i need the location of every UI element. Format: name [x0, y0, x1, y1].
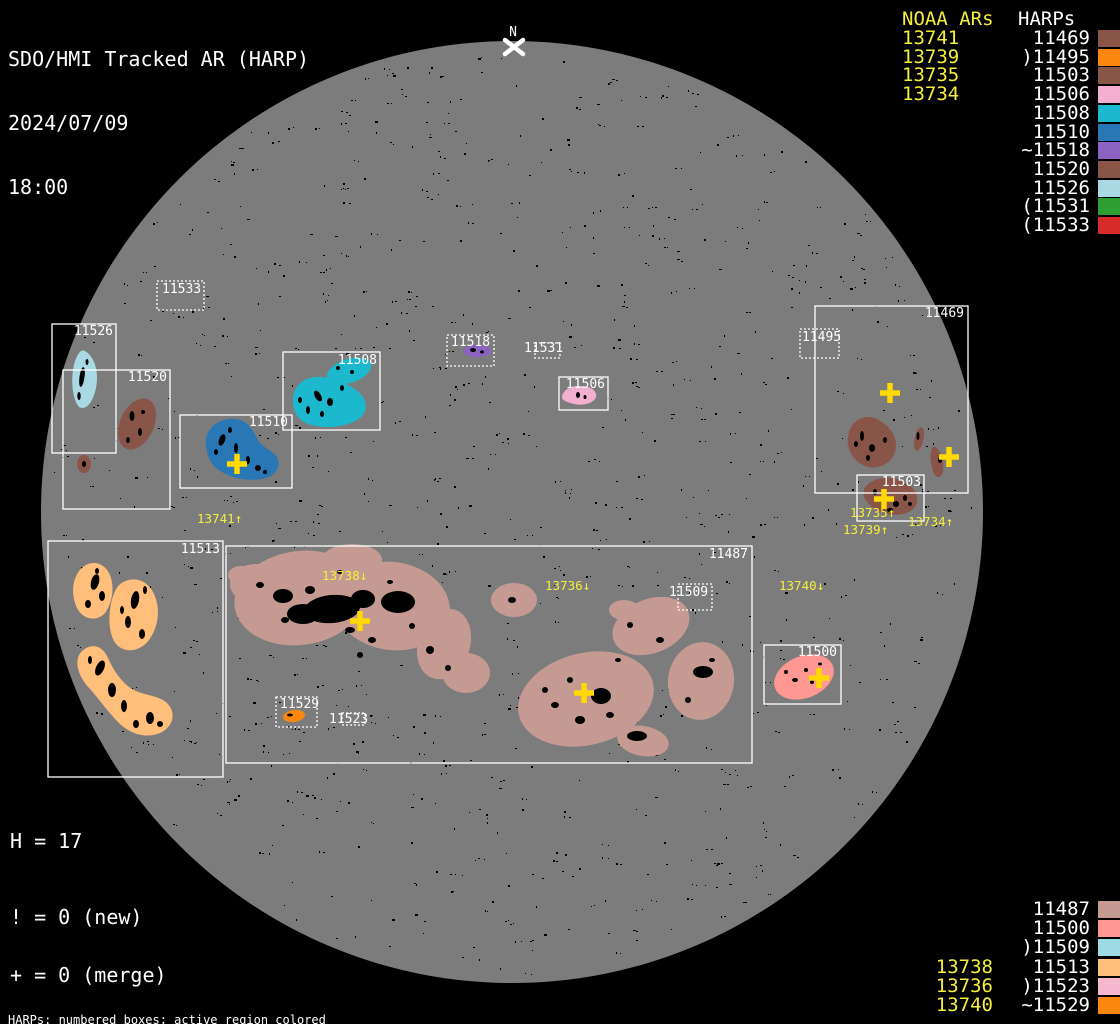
speckle — [849, 729, 850, 730]
speckle — [416, 435, 418, 436]
speckle — [616, 481, 618, 482]
speckle — [372, 480, 373, 481]
speckle — [931, 380, 932, 382]
speckle — [608, 845, 609, 846]
speckle — [375, 121, 378, 123]
speckle — [449, 351, 450, 352]
speckle — [702, 204, 703, 205]
speckle — [622, 306, 625, 307]
speckle — [342, 689, 343, 690]
speckle — [701, 564, 702, 565]
speckle — [854, 579, 855, 581]
speckle — [624, 227, 625, 228]
speckle — [358, 671, 360, 672]
speckle — [641, 499, 643, 500]
speckle — [950, 498, 952, 499]
speckle — [944, 498, 946, 499]
speckle — [268, 752, 269, 753]
speckle — [522, 809, 524, 811]
speckle — [190, 720, 191, 722]
speckle — [134, 506, 135, 508]
speckle — [487, 911, 488, 912]
speckle — [189, 741, 191, 742]
speckle — [805, 476, 806, 477]
speckle — [506, 853, 507, 854]
speckle — [412, 434, 413, 436]
speckle — [93, 407, 95, 408]
speckle — [421, 798, 423, 800]
speckle — [299, 427, 301, 429]
speckle — [904, 300, 905, 301]
speckle — [897, 721, 899, 722]
speckle — [271, 716, 272, 717]
speckle — [120, 498, 121, 499]
speckle — [423, 933, 424, 934]
speckle — [610, 82, 612, 83]
speckle — [507, 638, 508, 640]
speckle — [194, 584, 197, 585]
speckle — [657, 572, 658, 573]
speckle — [317, 455, 318, 457]
speckle — [768, 894, 769, 895]
speckle — [664, 842, 666, 844]
speckle — [395, 301, 397, 302]
speckle — [584, 225, 586, 227]
harp-box-label-11509: 11509 — [669, 585, 708, 600]
speckle — [430, 134, 431, 135]
speckle — [191, 741, 192, 743]
speckle — [624, 295, 626, 296]
speckle — [563, 321, 564, 322]
speckle — [339, 531, 341, 532]
speckle — [555, 621, 556, 623]
speckle — [362, 741, 364, 743]
harp-box-label-11510: 11510 — [249, 415, 288, 430]
speckle — [499, 788, 502, 789]
speckle — [308, 455, 310, 457]
speckle — [466, 143, 467, 144]
speckle — [612, 79, 615, 80]
speckle — [148, 744, 149, 745]
speckle — [896, 537, 897, 538]
speckle — [276, 523, 277, 524]
speckle — [756, 877, 757, 878]
speckle — [345, 123, 347, 124]
speckle — [486, 814, 488, 816]
speckle — [489, 402, 491, 403]
speckle — [726, 837, 727, 839]
speckle — [336, 938, 338, 939]
speckle — [390, 142, 392, 143]
speckle — [843, 640, 844, 641]
speckle — [614, 319, 615, 321]
speckle — [645, 815, 647, 816]
speckle — [201, 785, 202, 786]
speckle — [368, 501, 369, 502]
speckle — [315, 128, 317, 130]
speckle — [422, 554, 423, 555]
speckle — [681, 715, 683, 717]
speckle — [400, 665, 403, 666]
speckle — [597, 285, 600, 287]
speckle — [422, 189, 423, 191]
speckle — [727, 137, 729, 138]
speckle — [691, 899, 693, 900]
speckle — [816, 253, 818, 254]
speckle — [440, 513, 442, 515]
speckle — [412, 146, 413, 148]
speckle — [714, 378, 716, 380]
speckle — [593, 237, 594, 239]
speckle — [728, 531, 729, 533]
stat-new: ! = 0 (new) — [10, 908, 239, 927]
speckle — [463, 384, 465, 386]
speckle — [513, 923, 514, 924]
speckle — [911, 415, 912, 416]
speckle — [696, 209, 698, 210]
speckle — [844, 728, 845, 730]
speckle — [739, 412, 741, 413]
noaa-label-13736: 13736↓ — [545, 578, 590, 593]
speckle — [491, 159, 493, 160]
speckle — [393, 75, 396, 77]
speckle — [349, 203, 351, 204]
speckle — [765, 682, 766, 683]
speckle — [143, 742, 144, 744]
speckle — [757, 712, 759, 713]
speckle — [662, 95, 664, 97]
speckle — [579, 868, 581, 870]
speckle — [865, 214, 866, 215]
speckle — [662, 690, 663, 691]
speckle — [346, 255, 347, 257]
speckle — [704, 239, 706, 241]
speckle — [147, 741, 149, 742]
speckle — [518, 290, 520, 292]
speckle — [758, 209, 759, 210]
speckle — [910, 355, 911, 356]
speckle — [272, 540, 274, 542]
speckle — [256, 268, 257, 269]
speckle — [341, 334, 342, 335]
speckle — [793, 265, 795, 266]
speckle — [472, 204, 473, 205]
speckle — [829, 298, 831, 299]
speckle — [918, 663, 920, 664]
speckle — [146, 572, 148, 574]
speckle — [460, 206, 461, 207]
speckle — [425, 416, 426, 418]
speckle — [478, 858, 480, 859]
speckle — [371, 900, 372, 901]
speckle — [928, 506, 929, 507]
speckle — [556, 861, 558, 862]
speckle — [479, 809, 481, 810]
speckle — [140, 281, 142, 282]
legend-harp-11508: 11508 — [998, 104, 1090, 123]
speckle — [423, 714, 426, 716]
speckle — [502, 442, 504, 443]
speckle — [192, 229, 193, 231]
legend-harp-11523: )11523 — [998, 977, 1090, 996]
speckle — [365, 78, 366, 80]
speckle — [746, 312, 748, 313]
speckle — [741, 373, 742, 375]
speckle — [787, 377, 789, 379]
speckle — [424, 732, 426, 734]
speckle — [464, 153, 466, 155]
speckle — [271, 765, 272, 767]
speckle — [190, 468, 191, 470]
speckle — [937, 592, 938, 594]
speckle — [765, 837, 767, 838]
speckle — [870, 221, 871, 222]
speckle — [666, 97, 668, 98]
speckle — [852, 260, 854, 261]
speckle — [524, 374, 526, 376]
speckle — [223, 318, 225, 320]
speckle — [692, 209, 693, 210]
speckle — [705, 811, 706, 812]
speckle — [621, 507, 623, 508]
speckle — [647, 874, 649, 875]
speckle — [505, 921, 507, 922]
speckle — [781, 452, 782, 453]
speckle — [361, 685, 362, 686]
speckle — [256, 680, 258, 681]
speckle — [837, 391, 839, 392]
speckle — [335, 348, 337, 349]
speckle — [508, 708, 511, 710]
speckle — [689, 288, 690, 289]
speckle — [158, 428, 160, 429]
speckle — [219, 754, 220, 755]
speckle — [695, 106, 697, 107]
speckle — [530, 941, 532, 942]
speckle — [274, 263, 276, 265]
noaa-label-13738: 13738↓ — [322, 568, 367, 583]
speckle — [299, 741, 301, 742]
speckle — [525, 973, 526, 974]
speckle — [721, 916, 722, 918]
speckle — [299, 500, 302, 502]
speckle — [119, 572, 120, 574]
speckle — [358, 846, 360, 848]
speckle — [887, 326, 888, 327]
speckle — [389, 946, 391, 947]
speckle — [203, 779, 205, 780]
speckle — [435, 715, 436, 717]
speckle — [427, 102, 429, 103]
speckle — [852, 309, 853, 311]
speckle — [399, 240, 401, 241]
speckle — [938, 427, 939, 429]
speckle — [842, 438, 843, 439]
time-label: 18:00 — [8, 177, 309, 198]
speckle — [737, 227, 738, 228]
speckle — [375, 723, 376, 724]
speckle — [523, 433, 525, 435]
speckle — [330, 268, 331, 269]
speckle — [519, 202, 520, 204]
legend-noaa-13736: 13736 — [898, 977, 993, 996]
speckle — [194, 743, 196, 744]
speckle — [828, 509, 829, 511]
legend-swatch-11503 — [1098, 67, 1120, 84]
speckle — [602, 844, 603, 845]
speckle — [894, 724, 896, 725]
speckle — [522, 798, 523, 800]
speckle — [366, 770, 367, 771]
speckle — [376, 132, 377, 134]
speckle — [446, 526, 448, 528]
speckle — [885, 258, 886, 259]
legend-noaa-13740: 13740 — [898, 996, 993, 1015]
speckle — [536, 446, 537, 447]
speckle — [172, 757, 173, 758]
speckle — [371, 722, 372, 723]
legend-swatch-11509 — [1098, 939, 1120, 956]
speckle — [695, 612, 696, 614]
title-block: SDO/HMI Tracked AR (HARP) 2024/07/09 18:… — [8, 6, 309, 220]
speckle — [516, 707, 518, 708]
speckle — [722, 641, 723, 643]
speckle — [433, 742, 434, 744]
speckle — [593, 212, 594, 214]
harp-box-label-11508: 11508 — [338, 353, 377, 368]
speckle — [175, 437, 176, 439]
speckle — [913, 372, 916, 374]
speckle — [333, 727, 335, 728]
speckle — [577, 172, 579, 173]
speckle — [490, 454, 491, 455]
speckle — [317, 686, 319, 688]
speckle — [863, 269, 865, 270]
speckle — [718, 517, 720, 518]
speckle — [565, 490, 566, 491]
speckle — [623, 207, 624, 208]
speckle — [847, 701, 848, 702]
legend-swatch-11500 — [1098, 920, 1120, 937]
speckle — [517, 646, 518, 648]
speckle — [640, 96, 641, 97]
speckle — [162, 429, 163, 430]
speckle — [613, 347, 615, 349]
speckle — [343, 183, 345, 185]
speckle — [701, 408, 702, 409]
speckle — [770, 682, 771, 683]
speckle — [788, 275, 790, 276]
speckle — [642, 909, 643, 910]
speckle — [500, 781, 502, 782]
speckle — [630, 358, 632, 360]
footer-line-1: HARPs: numbered boxes; active region col… — [8, 1014, 427, 1024]
legend-swatch-11518 — [1098, 142, 1120, 159]
speckle — [174, 691, 175, 692]
speckle — [706, 849, 708, 850]
speckle — [482, 734, 483, 736]
speckle — [141, 355, 142, 356]
speckle — [602, 427, 604, 428]
speckle — [507, 438, 509, 440]
speckle — [618, 585, 620, 586]
speckle — [569, 497, 570, 499]
speckle — [434, 479, 435, 481]
speckle — [786, 619, 787, 621]
speckle — [279, 265, 281, 266]
speckle — [451, 891, 453, 893]
speckle — [487, 822, 488, 824]
speckle — [942, 594, 943, 595]
speckle — [884, 645, 885, 647]
speckle — [397, 737, 399, 738]
speckle — [227, 802, 230, 803]
speckle — [792, 775, 794, 776]
speckle — [693, 497, 694, 498]
speckle — [328, 728, 329, 730]
speckle — [298, 729, 300, 730]
speckle — [737, 353, 740, 354]
speckle — [179, 774, 180, 775]
speckle — [749, 312, 751, 313]
speckle — [611, 399, 612, 400]
speckle — [813, 714, 815, 715]
speckle — [642, 126, 644, 127]
speckle — [766, 831, 767, 832]
speckle — [416, 884, 417, 886]
speckle — [289, 753, 290, 754]
speckle — [481, 72, 483, 73]
speckle — [671, 929, 672, 930]
speckle — [472, 458, 474, 459]
speckle — [791, 288, 793, 290]
speckle — [508, 920, 509, 921]
speckle — [441, 773, 442, 775]
speckle — [187, 728, 189, 729]
speckle — [763, 461, 764, 462]
speckle — [649, 541, 650, 542]
speckle — [377, 234, 378, 235]
speckle — [189, 234, 191, 235]
speckle — [581, 345, 582, 346]
speckle — [426, 191, 428, 192]
speckle — [671, 418, 673, 419]
speckle — [765, 384, 767, 385]
speckle — [233, 502, 234, 503]
speckle — [450, 394, 451, 396]
speckle — [484, 859, 485, 860]
speckle — [933, 429, 934, 430]
speckle — [306, 658, 307, 659]
speckle — [419, 554, 420, 555]
speckle — [399, 421, 401, 422]
speckle — [715, 413, 717, 415]
speckle — [596, 530, 598, 531]
speckle — [778, 571, 779, 572]
speckle — [295, 425, 298, 426]
legend-swatch-11469 — [1098, 30, 1120, 47]
speckle — [581, 97, 582, 98]
speckle — [792, 277, 794, 278]
speckle — [450, 101, 451, 103]
speckle — [373, 441, 374, 442]
speckle — [843, 393, 844, 394]
speckle — [653, 225, 654, 227]
speckle — [742, 644, 743, 646]
speckle — [543, 556, 545, 558]
speckle — [510, 519, 511, 520]
speckle — [182, 497, 184, 498]
